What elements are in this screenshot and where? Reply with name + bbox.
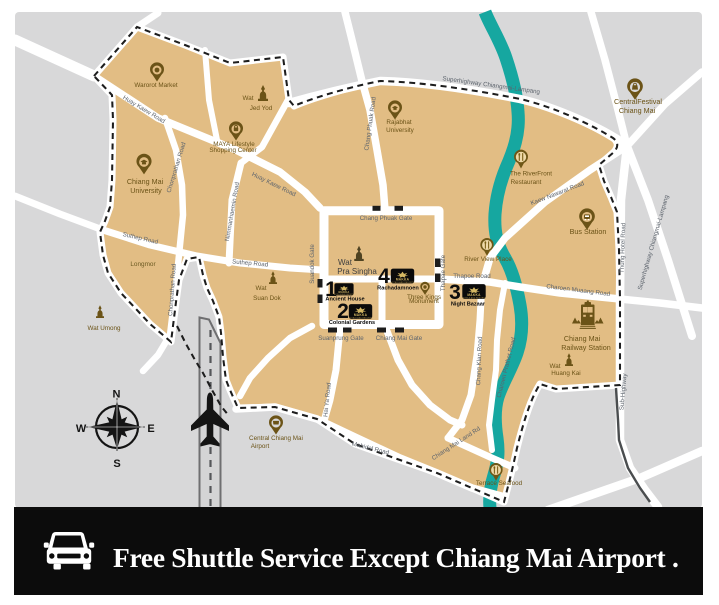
- svg-text:Suanprung Gate: Suanprung Gate: [318, 335, 364, 342]
- svg-text:CentralFestival: CentralFestival: [614, 97, 662, 106]
- svg-text:Huang Kai: Huang Kai: [551, 370, 580, 377]
- svg-text:Jed Yod: Jed Yod: [250, 105, 273, 112]
- svg-text:Chiang Mai: Chiang Mai: [127, 177, 164, 186]
- svg-text:Colonial Gardens: Colonial Gardens: [329, 320, 375, 326]
- svg-text:Wat: Wat: [243, 95, 254, 102]
- svg-text:Pra Singha: Pra Singha: [337, 267, 377, 276]
- svg-text:Monument: Monument: [409, 298, 439, 305]
- svg-text:W: W: [76, 423, 87, 435]
- svg-text:Wat: Wat: [338, 258, 353, 267]
- svg-text:E: E: [147, 423, 154, 435]
- svg-text:Night Bazaar: Night Bazaar: [451, 302, 486, 308]
- svg-text:Railway Station: Railway Station: [561, 343, 611, 352]
- svg-text:N: N: [113, 389, 121, 401]
- svg-text:Wat: Wat: [256, 285, 267, 292]
- svg-text:Warorot Market: Warorot Market: [134, 82, 177, 89]
- svg-text:River View Place: River View Place: [464, 256, 512, 263]
- svg-text:Suandok Gate: Suandok Gate: [309, 244, 316, 284]
- svg-text:Restaurant: Restaurant: [511, 179, 542, 186]
- svg-text:Central Chiang Mai: Central Chiang Mai: [249, 435, 303, 442]
- svg-text:S: S: [113, 458, 120, 470]
- svg-text:Airport: Airport: [251, 443, 270, 450]
- svg-text:Thapae Gate: Thapae Gate: [440, 254, 447, 291]
- svg-text:University: University: [130, 186, 162, 195]
- svg-text:Suan Dok: Suan Dok: [253, 295, 282, 302]
- svg-text:Bus Station: Bus Station: [570, 227, 607, 236]
- svg-text:University: University: [386, 127, 414, 134]
- svg-text:Wat Umong: Wat Umong: [87, 325, 121, 332]
- svg-text:Longmor: Longmor: [130, 261, 156, 268]
- svg-text:Terrace Seafood: Terrace Seafood: [476, 480, 523, 487]
- svg-text:Chiang Mai Gate: Chiang Mai Gate: [376, 335, 423, 342]
- svg-text:Chiang Mai: Chiang Mai: [619, 106, 656, 115]
- svg-text:The RiverFront: The RiverFront: [510, 171, 552, 178]
- svg-text:Free Shuttle Service Except Ch: Free Shuttle Service Except Chiang Mai A…: [113, 542, 679, 573]
- svg-text:Wat: Wat: [550, 363, 561, 370]
- svg-text:Thapoe Road: Thapoe Road: [453, 273, 491, 280]
- svg-text:Chang Phuak Gate: Chang Phuak Gate: [360, 215, 413, 222]
- svg-text:Chiang Mai: Chiang Mai: [564, 334, 601, 343]
- svg-text:Shopping Center: Shopping Center: [209, 147, 256, 154]
- svg-text:Rajabhat: Rajabhat: [386, 119, 411, 126]
- svg-text:Rachadamnoen: Rachadamnoen: [377, 286, 419, 292]
